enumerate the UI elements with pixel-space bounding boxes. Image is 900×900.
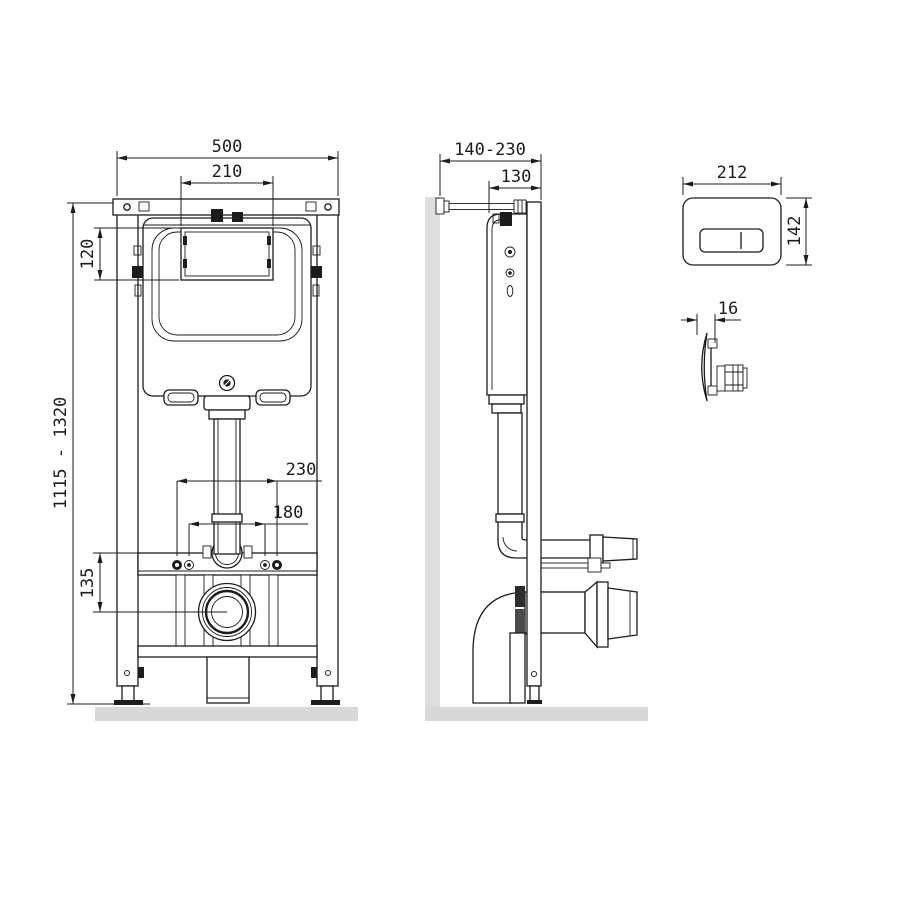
lower-cross-bar xyxy=(138,646,317,657)
waste-connector xyxy=(525,582,637,647)
strut-1 xyxy=(176,575,185,646)
dim-label-135: 135 xyxy=(78,568,98,599)
frame-column-side xyxy=(510,633,525,703)
pipe-collar-tab-right xyxy=(244,546,252,558)
top-plate-screw-right xyxy=(325,204,331,210)
technical-drawing-page: 500 210 120 1115 - 1320 230 xyxy=(0,0,900,900)
dim-label-180: 180 xyxy=(273,503,304,523)
fixing-rod-side xyxy=(541,558,610,572)
frame-top-plate xyxy=(113,199,339,215)
tank-bottom-slot-right xyxy=(256,390,290,405)
dim-plate-width-212: 212 xyxy=(683,163,781,195)
flush-pipe-coupling xyxy=(212,514,242,522)
plate-clip-bottom xyxy=(708,386,717,395)
inspection-window xyxy=(181,228,273,280)
rail-clip-left xyxy=(138,667,144,678)
dim-label-142: 142 xyxy=(785,216,805,247)
frame-right-rail xyxy=(317,212,338,686)
fill-valve-fitting-2 xyxy=(232,212,243,222)
dim-label-230: 230 xyxy=(286,460,317,480)
top-plate-screw-left xyxy=(124,204,130,210)
tank-bottom-slot-left xyxy=(164,390,198,405)
drain-clip-2 xyxy=(515,609,525,633)
dim-label-120: 120 xyxy=(78,239,98,270)
drain-clip-1 xyxy=(515,586,525,607)
floor-front xyxy=(95,707,358,721)
dim-label-210: 210 xyxy=(212,162,243,182)
side-view: 140-230 130 xyxy=(425,140,648,721)
foot-stem-left xyxy=(122,686,134,701)
dim-label-130: 130 xyxy=(501,167,532,187)
dim-label-140-230: 140-230 xyxy=(454,140,526,160)
floor-side xyxy=(425,707,648,721)
drawing-canvas: 500 210 120 1115 - 1320 230 xyxy=(0,0,900,900)
flush-plate-front: 212 142 xyxy=(683,163,812,265)
wall-bracket-rod xyxy=(436,198,526,214)
rail-clip-right xyxy=(311,667,317,678)
dim-label-212: 212 xyxy=(717,163,748,183)
flush-pipe-side xyxy=(489,395,637,563)
foot-plate-right xyxy=(311,700,340,705)
flush-valve-step-1 xyxy=(204,396,250,410)
flush-valve-step-2 xyxy=(209,410,245,419)
dim-label-height-range: 1115 - 1320 xyxy=(51,397,71,510)
wall xyxy=(425,197,440,707)
front-view: 500 210 120 1115 - 1320 230 xyxy=(51,137,358,721)
dim-label-500: 500 xyxy=(212,137,243,157)
dim-plate-height-142: 142 xyxy=(785,198,812,265)
fill-valve-fitting-1 xyxy=(211,209,223,222)
pipe-collar-tab-left xyxy=(203,546,211,558)
frame-rail-side xyxy=(527,202,542,704)
plate-mechanism xyxy=(717,365,747,391)
frame-left-rail xyxy=(117,212,138,686)
dim-window-width-210: 210 xyxy=(181,162,273,226)
foot-stem-right xyxy=(321,686,333,701)
flush-connector-pipe xyxy=(603,537,637,561)
dim-label-16: 16 xyxy=(718,299,738,319)
cistern-side xyxy=(487,212,527,395)
drain-housing xyxy=(207,657,249,703)
flush-plate-side: 16 xyxy=(681,299,747,401)
flush-button xyxy=(700,229,763,252)
dim-plate-thickness-16: 16 xyxy=(681,299,741,343)
plate-profile xyxy=(702,333,707,401)
strut-4 xyxy=(269,575,278,646)
plate-clip-top xyxy=(708,339,717,348)
